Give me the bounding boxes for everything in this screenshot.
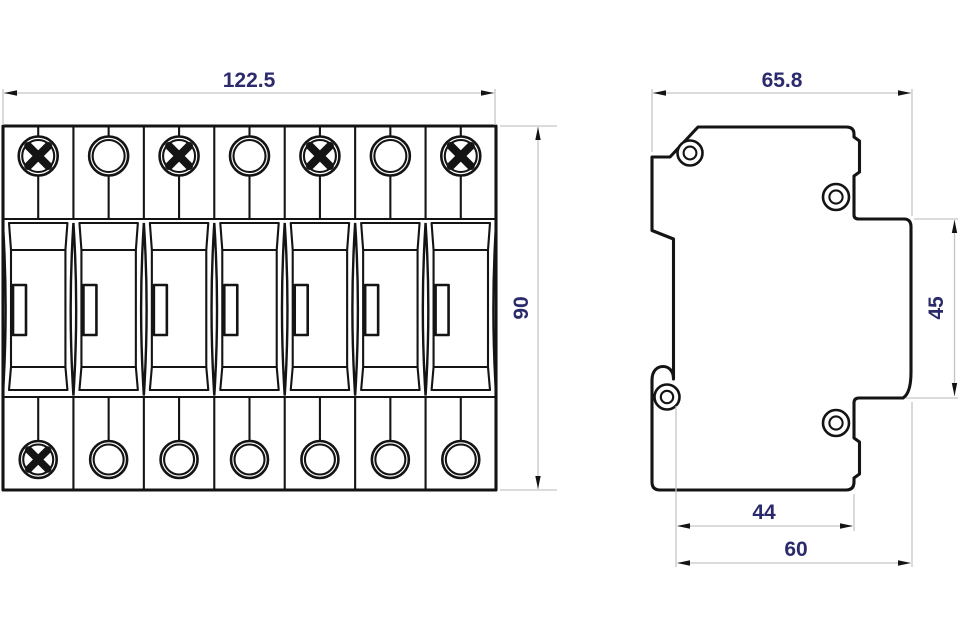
module-separator-bevel bbox=[352, 223, 358, 396]
terminal-hole-icon bbox=[372, 441, 409, 478]
terminal-hole-icon bbox=[301, 441, 338, 478]
module-separator-bevel bbox=[71, 223, 77, 396]
dim-label-front-width: 122.5 bbox=[223, 69, 276, 92]
dim-arrow-left bbox=[653, 90, 666, 95]
dimension-front-width: 122.5 bbox=[3, 69, 495, 125]
dim-arrow-left bbox=[677, 523, 690, 528]
toggle-handle bbox=[365, 285, 378, 335]
side-hole-top-left bbox=[678, 141, 703, 166]
dim-label-bottom-inner: 44 bbox=[752, 501, 776, 524]
terminal-hole-icon bbox=[230, 137, 269, 176]
dim-label-bottom-outer: 60 bbox=[784, 538, 807, 561]
dim-label-side-width: 65.8 bbox=[762, 69, 803, 92]
side-view bbox=[652, 127, 911, 490]
terminal-hole-icon bbox=[371, 137, 410, 176]
dim-arrow-right bbox=[840, 523, 853, 528]
technical-drawing: 122.5 90 65.8 45 bbox=[0, 0, 960, 640]
module-separator-bevel bbox=[141, 223, 147, 396]
module-separator-bevel bbox=[212, 223, 218, 396]
dim-arrow-left bbox=[4, 90, 17, 95]
dim-arrow-right bbox=[898, 90, 911, 95]
dim-label-front-height: 90 bbox=[510, 296, 533, 319]
toggle-handle bbox=[224, 285, 237, 335]
side-profile-outline bbox=[652, 127, 911, 490]
toggle-handle bbox=[83, 285, 96, 335]
round-hole-icon bbox=[823, 184, 849, 210]
dim-arrow-down bbox=[952, 383, 957, 396]
terminal-hole-icon bbox=[89, 137, 128, 176]
dimension-front-height: 90 bbox=[500, 126, 557, 490]
module-separator-bevel bbox=[423, 223, 429, 396]
dim-arrow-right bbox=[481, 90, 494, 95]
round-hole-icon bbox=[823, 410, 849, 436]
dim-arrow-up bbox=[535, 127, 540, 140]
module-separator-bevel bbox=[282, 223, 288, 396]
toggle-handle bbox=[436, 285, 449, 335]
front-view bbox=[3, 126, 496, 490]
side-hole-lower-right bbox=[823, 410, 849, 436]
dim-arrow-right bbox=[898, 560, 911, 565]
terminal-hole-icon bbox=[231, 441, 268, 478]
round-hole-icon bbox=[655, 385, 680, 410]
side-hole-upper-right bbox=[823, 184, 849, 210]
dimension-side-step-height: 45 bbox=[906, 219, 958, 398]
dim-arrow-left bbox=[677, 560, 690, 565]
round-hole-icon bbox=[678, 141, 703, 166]
dim-arrow-down bbox=[535, 476, 540, 489]
toggle-handle bbox=[295, 285, 308, 335]
terminal-hole-icon bbox=[90, 441, 127, 478]
terminal-hole-icon bbox=[161, 441, 198, 478]
dim-arrow-up bbox=[952, 220, 957, 233]
terminal-hole-icon bbox=[442, 441, 479, 478]
din-clip-hole bbox=[655, 385, 680, 410]
toggle-handle bbox=[154, 285, 167, 335]
toggle-handle bbox=[13, 285, 26, 335]
drawing-canvas: 122.5 90 65.8 45 bbox=[0, 0, 960, 640]
dim-label-side-step: 45 bbox=[925, 296, 948, 320]
